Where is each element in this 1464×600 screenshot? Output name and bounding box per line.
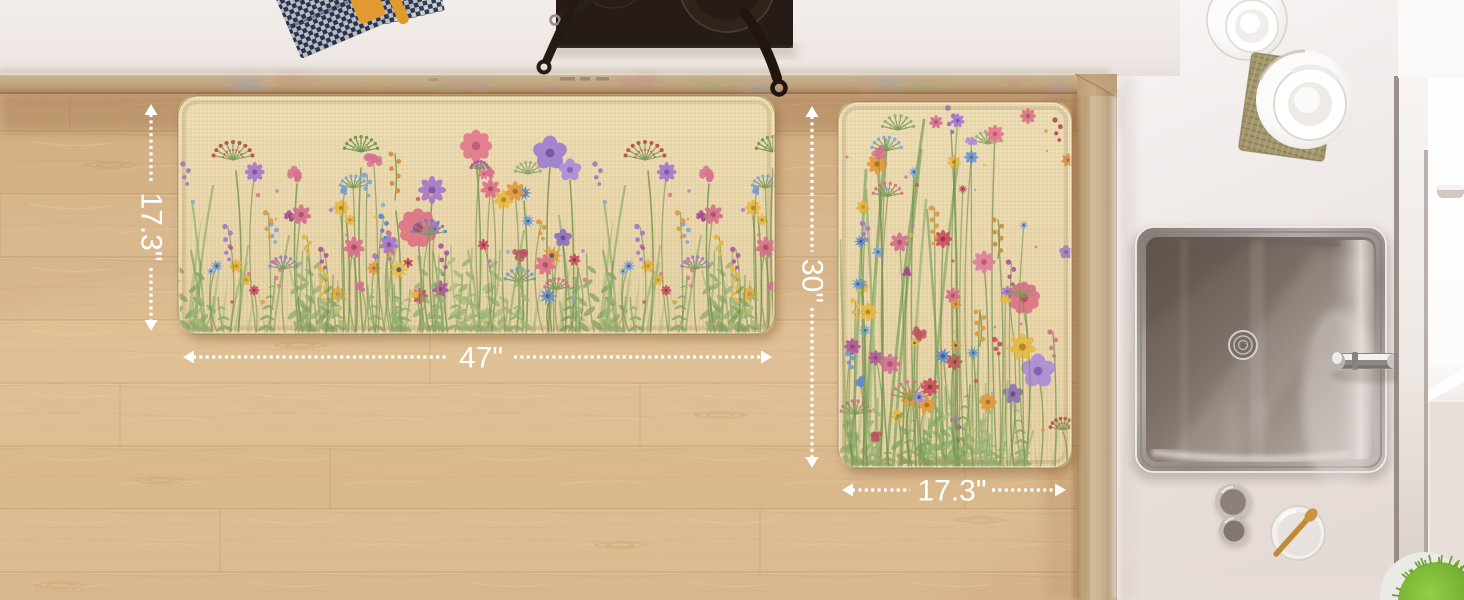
svg-text:17.3": 17.3" bbox=[135, 192, 168, 261]
svg-text:17.3": 17.3" bbox=[917, 475, 986, 508]
svg-text:30": 30" bbox=[796, 259, 829, 303]
svg-text:47": 47" bbox=[459, 342, 503, 375]
